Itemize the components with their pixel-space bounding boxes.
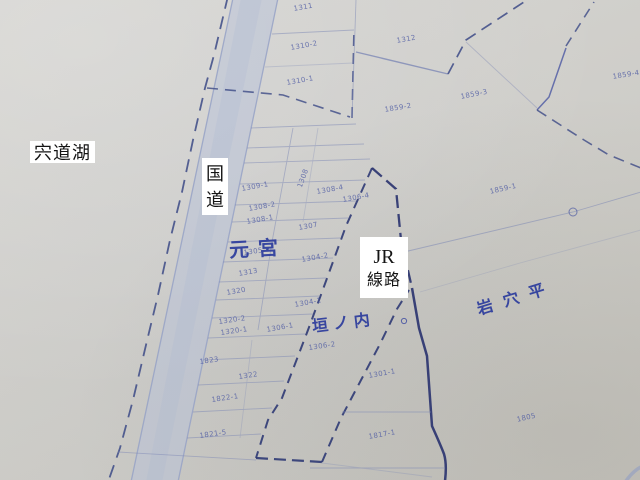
dashed-boundary-ne	[448, 2, 524, 74]
dashed-boundary-right-top	[566, 2, 594, 46]
annotation-jr-railway: JR 線路	[360, 237, 408, 298]
annotation-lake-shinjiko: 宍道湖	[30, 141, 95, 163]
faint-divider-ne	[466, 42, 537, 108]
dashed-boundary-right	[537, 110, 640, 168]
annotation-lake-text: 宍道湖	[34, 139, 91, 165]
annotation-national-road: 国 道	[202, 158, 228, 215]
corner-boundary-stroke	[626, 467, 640, 480]
parcel-boundary-top	[356, 52, 448, 74]
annotation-road-char-1: 国	[206, 161, 224, 187]
annotation-jr-line2: 線路	[367, 270, 401, 292]
annotation-road-char-2: 道	[206, 187, 224, 213]
annotation-jr-line1: JR	[373, 244, 394, 270]
area-label-motomiya: 元宮	[228, 231, 287, 263]
railway-corridor-bottom-dashed	[256, 458, 322, 462]
heavy-boundary-lower	[412, 288, 446, 480]
cadastral-map-photo: 13111310-21310-113121859-21859-31859-418…	[0, 0, 640, 480]
boundary-right-top	[537, 48, 566, 110]
parcel-divider-1859	[404, 192, 640, 252]
map-line-work	[0, 0, 640, 480]
place-name-circle	[401, 318, 406, 323]
